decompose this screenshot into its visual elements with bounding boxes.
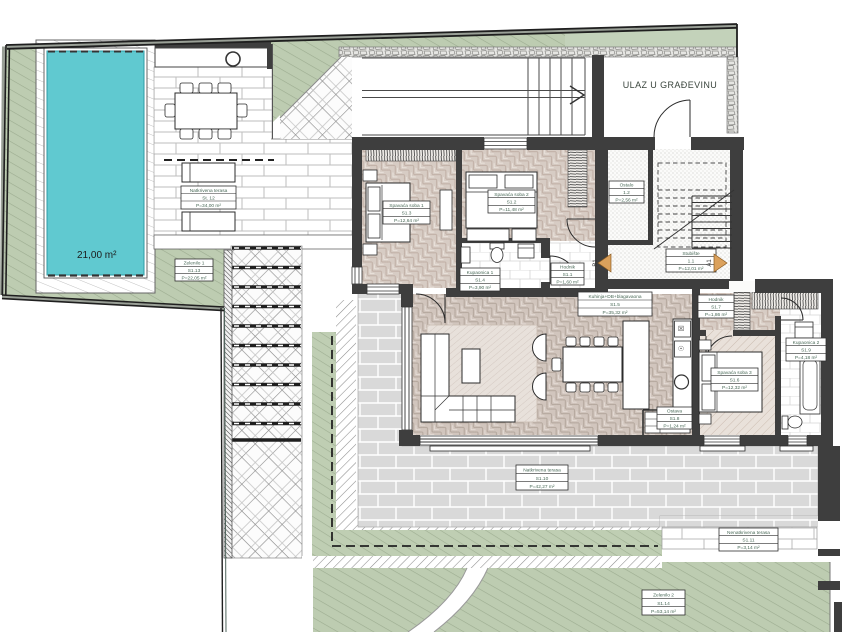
svg-text:Spavaća soba 1: Spavaća soba 1 [389,203,424,209]
svg-text:P=1,60 m²: P=1,60 m² [556,279,579,285]
svg-text:Ostalo: Ostalo [620,183,634,189]
svg-text:S1.9: S1.9 [801,348,811,354]
svg-text:ULAZ U GRAĐEVINU: ULAZ U GRAĐEVINU [623,80,717,90]
svg-text:P=1,24 m²: P=1,24 m² [663,423,686,429]
svg-text:S1.5: S1.5 [610,302,620,308]
svg-text:S1.13: S1.13 [188,268,201,274]
svg-text:Hodnik: Hodnik [560,265,576,271]
svg-text:P=2,56 m²: P=2,56 m² [615,197,638,203]
svg-text:Spavaća soba 2: Spavaća soba 2 [494,192,529,198]
svg-text:Kupaonica 2: Kupaonica 2 [793,340,820,346]
svg-text:☉: ☉ [678,345,684,353]
svg-text:Hodnik: Hodnik [709,297,725,303]
svg-text:☒: ☒ [678,325,684,333]
svg-text:P=53,14 m²: P=53,14 m² [651,609,676,615]
svg-text:P=1,86 m²: P=1,86 m² [705,312,728,318]
svg-text:S1.8: S1.8 [670,416,680,422]
svg-text:P=12,32 m²: P=12,32 m² [722,385,747,391]
svg-text:Nenatkrivena terasa: Nenatkrivena terasa [727,530,770,536]
svg-text:S1.6: S1.6 [730,378,740,384]
svg-text:P=12,01 m²: P=12,01 m² [679,266,704,272]
svg-text:P=3,14 m²: P=3,14 m² [737,545,760,551]
svg-text:P=34,00 m²: P=34,00 m² [196,203,221,209]
svg-text:Kuhinja+DB+blagavaona: Kuhinja+DB+blagavaona [588,294,641,300]
svg-text:S1.3: S1.3 [402,211,412,217]
svg-text:S1.4: S1.4 [475,278,485,284]
svg-text:P=22,05 m²: P=22,05 m² [182,275,207,281]
svg-text:St. 12: St. 12 [202,196,215,202]
svg-text:P=3,90 m²: P=3,90 m² [469,285,492,291]
svg-text:Natkrivena terasa: Natkrivena terasa [190,188,228,194]
svg-text:S1.2: S1.2 [507,200,517,206]
svg-text:B1: B1 [593,259,599,267]
svg-text:Spavaća soba 3: Spavaća soba 3 [717,370,752,376]
svg-text:S1.14: S1.14 [657,601,670,607]
svg-text:1.2: 1.2 [623,190,630,196]
svg-text:S1.10: S1.10 [536,476,549,482]
svg-text:Ostava: Ostava [667,409,683,415]
svg-text:P=42,27 m²: P=42,27 m² [530,484,555,490]
svg-text:A1: A1 [707,259,713,267]
svg-text:P=11,48 m²: P=11,48 m² [499,207,524,213]
svg-text:Stubište: Stubište [682,251,700,257]
svg-text:S1.1: S1.1 [563,272,573,278]
svg-text:S1.7: S1.7 [711,305,721,311]
svg-text:Kupaonica 1: Kupaonica 1 [467,270,494,276]
svg-text:P=35,32 m²: P=35,32 m² [603,310,628,316]
svg-text:Zelenilo 2: Zelenilo 2 [653,593,674,599]
svg-text:P=4,18 m²: P=4,18 m² [795,355,818,361]
svg-text:21,00 m²: 21,00 m² [77,250,117,261]
svg-text:1.1: 1.1 [688,259,695,265]
svg-text:P=12,64 m²: P=12,64 m² [394,218,419,224]
svg-text:Natkrivena terasa: Natkrivena terasa [523,468,561,474]
svg-text:S1.11: S1.11 [742,538,755,544]
svg-text:Zelenilo 1: Zelenilo 1 [184,261,205,267]
